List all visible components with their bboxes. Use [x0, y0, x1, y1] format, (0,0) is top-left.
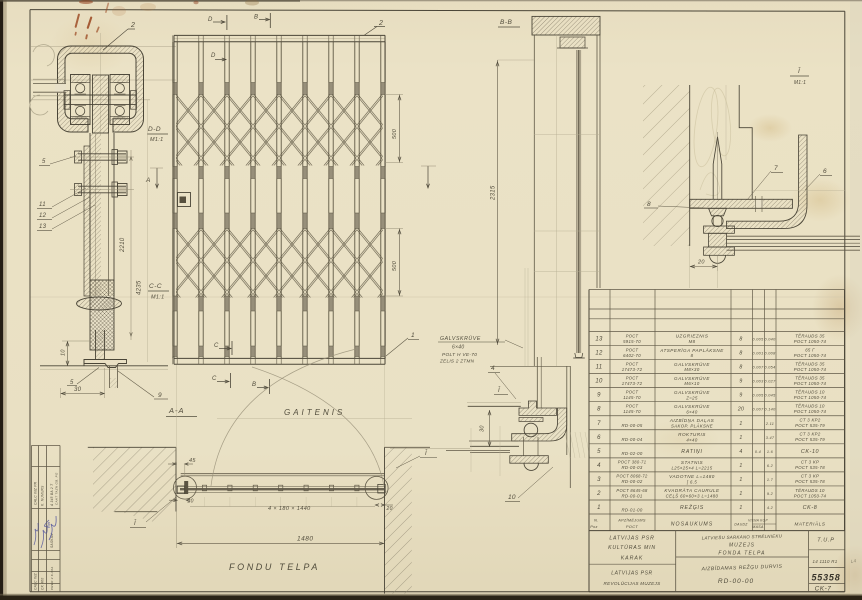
svg-text:10: 10 [61, 349, 67, 356]
svg-text:M1:1: M1:1 [150, 137, 163, 143]
svg-text:1: 1 [739, 491, 742, 497]
svg-text:Z=25: Z=25 [685, 395, 698, 400]
svg-text:POCT 1050-74: POCT 1050-74 [794, 367, 827, 372]
svg-text:1: 1 [739, 463, 742, 469]
svg-text:POCT 535-78: POCT 535-78 [795, 465, 825, 470]
svg-text:5: 5 [597, 449, 601, 455]
svg-text:RD-01-00: RD-01-00 [621, 507, 642, 512]
svg-text:CT 3 KP2: CT 3 KP2 [799, 432, 820, 437]
svg-text:D: D [208, 17, 213, 23]
svg-text:4235: 4235 [137, 280, 143, 295]
svg-text:ROKTURIS: ROKTURIS [678, 432, 706, 437]
svg-text:POCT 1050-74: POCT 1050-74 [794, 381, 827, 386]
svg-text:K. NUMURS: K. NUMURS [41, 485, 45, 506]
svg-text:POLT H VE-70: POLT H VE-70 [442, 352, 477, 358]
svg-text:8: 8 [647, 201, 651, 208]
svg-text:0.007: 0.007 [752, 366, 764, 370]
svg-text:0.054: 0.054 [764, 366, 775, 370]
svg-text:0.005: 0.005 [752, 394, 764, 398]
svg-text:1145-70: 1145-70 [623, 395, 641, 400]
svg-text:0.045: 0.045 [764, 394, 776, 398]
svg-text:Rih: Rih [46, 521, 51, 528]
svg-text:20: 20 [697, 260, 705, 266]
svg-text:7: 7 [597, 421, 601, 427]
svg-text:GALVSKRŪVE: GALVSKRŪVE [674, 389, 710, 395]
svg-text:8: 8 [739, 365, 742, 371]
svg-text:12: 12 [595, 351, 603, 357]
svg-text:1: 1 [597, 505, 601, 511]
svg-text:TĒRAUDS 35: TĒRAUDS 35 [795, 375, 825, 380]
svg-text:GALVSKRŪVE: GALVSKRŪVE [674, 375, 710, 381]
svg-text:CK-10: CK-10 [801, 449, 819, 455]
svg-text:TĒRAUDS 10: TĒRAUDS 10 [795, 488, 825, 493]
svg-text:A: A [145, 177, 151, 184]
svg-text:6: 6 [597, 435, 601, 441]
svg-text:ATSPERĪGA PAPLĀKSNE: ATSPERĪGA PAPLĀKSNE [659, 347, 724, 353]
svg-text:0.005: 0.005 [752, 338, 764, 342]
svg-text:30: 30 [480, 425, 486, 432]
svg-text:B: B [252, 382, 256, 388]
svg-text:PRED 3 K-60A: PRED 3 K-60A [50, 566, 54, 590]
svg-text:GAITENIS: GAITENIS [284, 408, 345, 417]
svg-text:POCT: POCT [626, 524, 639, 529]
svg-text:30: 30 [74, 387, 82, 393]
svg-text:VIENA KOP: VIENA KOP [748, 519, 768, 523]
svg-text:4: 4 [597, 463, 601, 469]
svg-text:M8: M8 [689, 339, 696, 344]
svg-text:0.007: 0.007 [752, 408, 764, 412]
svg-text:6402-70: 6402-70 [623, 353, 641, 358]
svg-text:APZĪMĒJUMS: APZĪMĒJUMS [617, 519, 646, 523]
svg-text:POCT 535-79: POCT 535-79 [795, 437, 825, 442]
svg-text:TĒRAUDS 10: TĒRAUDS 10 [795, 404, 825, 409]
svg-text:9: 9 [739, 379, 742, 385]
svg-text:0.040: 0.040 [764, 338, 776, 342]
svg-text:3: 3 [597, 477, 601, 483]
svg-text:CT 3 KP: CT 3 KP [801, 460, 819, 465]
svg-text:POCT: POCT [626, 361, 639, 366]
svg-text:RD-00-02: RD-00-02 [621, 479, 642, 484]
svg-text:3.47: 3.47 [766, 436, 775, 440]
svg-text:Poz: Poz [590, 525, 597, 529]
svg-text:RD-00-04: RD-00-04 [621, 437, 642, 442]
svg-text:4×40: 4×40 [686, 437, 697, 442]
svg-text:5915-70: 5915-70 [623, 339, 641, 344]
svg-text:POCT 1050-74: POCT 1050-74 [794, 339, 827, 344]
svg-text:6×40: 6×40 [452, 345, 464, 351]
svg-text:20: 20 [737, 407, 744, 413]
svg-text:CK-8: CK-8 [803, 505, 818, 511]
svg-text:6.2: 6.2 [767, 464, 774, 468]
svg-text:8: 8 [597, 407, 601, 413]
svg-text:STATNIS: STATNIS [681, 460, 704, 465]
svg-text:1: 1 [739, 421, 742, 427]
svg-text:A 345 BA 2 T: A 345 BA 2 T [50, 483, 54, 507]
svg-text:ZELIS 2 ZTMN: ZELIS 2 ZTMN [439, 359, 475, 364]
svg-text:1145-70: 1145-70 [623, 409, 641, 414]
svg-text:M1:1: M1:1 [151, 295, 164, 301]
svg-text:20: 20 [187, 499, 194, 505]
svg-text:POCT 8645-68: POCT 8645-68 [616, 488, 648, 493]
svg-text:13: 13 [39, 224, 47, 230]
svg-text:9.2: 9.2 [767, 492, 774, 496]
svg-text:6×40: 6×40 [686, 409, 697, 414]
svg-text:GALVSKRŪVE: GALVSKRŪVE [674, 403, 710, 409]
svg-text:N.: N. [594, 518, 599, 523]
svg-text:2: 2 [130, 22, 135, 29]
svg-text:2.11: 2.11 [765, 422, 774, 426]
svg-text:POCT 380-71: POCT 380-71 [618, 460, 647, 465]
svg-text:2210: 2210 [120, 237, 126, 253]
svg-text:10: 10 [508, 494, 516, 501]
svg-text:1.7: 1.7 [767, 478, 774, 482]
svg-text:MATERIĀLS: MATERIĀLS [794, 521, 825, 527]
svg-text:POCT: POCT [626, 375, 639, 380]
svg-text:17473-72: 17473-72 [622, 381, 643, 386]
svg-text:T.U.P: T.U.P [817, 538, 835, 544]
svg-text:1.6: 1.6 [767, 450, 774, 454]
svg-text:KARAK: KARAK [621, 556, 644, 562]
svg-text:12: 12 [39, 213, 47, 219]
svg-text:6: 6 [823, 168, 827, 175]
svg-text:1: 1 [411, 332, 415, 339]
svg-text:SAKOP. PLĀKSNE: SAKOP. PLĀKSNE [671, 423, 713, 428]
svg-text:9: 9 [158, 392, 162, 399]
svg-text:POCT: POCT [626, 347, 639, 352]
svg-text:DAUDZ: DAUDZ [734, 523, 748, 527]
svg-text:AIZBĪDŅA DAĻAS: AIZBĪDŅA DAĻAS [669, 417, 715, 423]
svg-text:C-C: C-C [149, 283, 162, 290]
svg-text:4.2: 4.2 [767, 506, 774, 510]
svg-text:LATVIJAS PSR: LATVIJAS PSR [609, 536, 654, 542]
svg-text:0.4: 0.4 [755, 450, 761, 454]
svg-text:1: 1 [739, 477, 742, 483]
svg-text:GALVSKRŪVE: GALVSKRŪVE [674, 361, 710, 367]
svg-text:CALC INZ PR: CALC INZ PR [34, 481, 38, 505]
svg-text:45: 45 [189, 458, 196, 464]
svg-text:2: 2 [596, 491, 601, 497]
svg-text:CT 3 KP2: CT 3 KP2 [799, 418, 820, 423]
svg-text:GALVSKRŪVE: GALVSKRŪVE [440, 335, 481, 342]
svg-text:4: 4 [739, 449, 742, 455]
svg-text:LATVIJAS PSR: LATVIJAS PSR [611, 571, 653, 577]
svg-text:MUZEJS: MUZEJS [729, 543, 755, 549]
svg-text:55358: 55358 [811, 573, 840, 583]
svg-text:KVADRĀTA CAURULE: KVADRĀTA CAURULE [664, 487, 720, 493]
svg-text:0.001: 0.001 [752, 352, 763, 356]
svg-text:L4: L4 [850, 558, 857, 564]
svg-text:MASA: MASA [752, 525, 764, 529]
svg-text:2315: 2315 [491, 185, 497, 201]
svg-text:0.027: 0.027 [764, 380, 776, 384]
svg-text:TĒRAUDS 35: TĒRAUDS 35 [795, 333, 825, 338]
svg-text:A-A: A-A [168, 406, 185, 415]
svg-text:0.003: 0.003 [752, 380, 764, 384]
svg-text:4 × 180 × 1440: 4 × 180 × 1440 [268, 506, 311, 512]
svg-text:11: 11 [596, 365, 603, 371]
svg-text:7: 7 [774, 165, 778, 172]
svg-text:11: 11 [39, 202, 46, 208]
svg-text:1: 1 [739, 505, 742, 511]
svg-text:1: 1 [739, 435, 742, 441]
svg-text:POCT 8068-72: POCT 8068-72 [616, 474, 648, 479]
svg-text:POCT 1050-74: POCT 1050-74 [794, 353, 827, 358]
svg-text:10: 10 [595, 379, 603, 385]
svg-text:CEĻŠ 60×60×3 L=1480: CEĻŠ 60×60×3 L=1480 [666, 494, 719, 499]
svg-text:KULTŪRAS MIN: KULTŪRAS MIN [608, 544, 656, 551]
svg-text:TĒRAUDS 10: TĒRAUDS 10 [795, 389, 825, 394]
svg-text:C: C [214, 343, 219, 349]
svg-text:9: 9 [597, 393, 601, 399]
svg-text:SASKAN: SASKAN [50, 533, 54, 548]
svg-text:RD-00-01: RD-00-01 [621, 493, 642, 498]
svg-text:65 Г: 65 Г [805, 347, 815, 352]
svg-text:NOSAUKUMS: NOSAUKUMS [671, 522, 713, 528]
svg-text:D-D: D-D [148, 126, 161, 133]
svg-text:5: 5 [70, 380, 74, 386]
svg-text:POCT 1050-74: POCT 1050-74 [794, 409, 827, 414]
svg-text:8: 8 [739, 351, 742, 357]
svg-text:POCT 535-79: POCT 535-79 [795, 423, 825, 428]
svg-text:C: C [212, 376, 217, 382]
svg-text:CAHT TAZN GB. PG: CAHT TAZN GB. PG [55, 472, 59, 505]
svg-text:2: 2 [378, 20, 383, 27]
svg-text:M1:1: M1:1 [794, 80, 806, 86]
svg-text:POCT 1050-74: POCT 1050-74 [794, 493, 827, 498]
svg-text:POCT: POCT [626, 333, 639, 338]
svg-text:5: 5 [42, 159, 46, 165]
svg-text:9: 9 [739, 393, 742, 399]
svg-text:RD-00-00: RD-00-00 [718, 578, 754, 585]
svg-text:POCT: POCT [626, 389, 639, 394]
svg-text:FONDU TELPA: FONDU TELPA [229, 562, 320, 572]
svg-text:8: 8 [691, 353, 694, 358]
svg-text:POCT 535-78: POCT 535-78 [795, 479, 825, 484]
svg-text:POCT: POCT [626, 404, 639, 409]
svg-text:17473-72: 17473-72 [622, 367, 643, 372]
svg-text:1480: 1480 [297, 536, 313, 543]
svg-text:RD-00-05: RD-00-05 [621, 423, 642, 428]
svg-text:B-B: B-B [500, 19, 513, 26]
svg-text:500: 500 [392, 128, 398, 139]
svg-text:RATIŅI: RATIŅI [681, 449, 702, 455]
svg-text:[ 6.5: [ 6.5 [686, 480, 698, 485]
svg-text:CALC INZ: CALC INZ [34, 572, 38, 590]
svg-text:RD-00-03: RD-00-03 [621, 465, 642, 470]
svg-text:REVOLŪCIJAS MUZEJS: REVOLŪCIJAS MUZEJS [604, 580, 662, 586]
svg-text:FONDA TELPA: FONDA TELPA [718, 551, 765, 557]
svg-text:M6×10: M6×10 [684, 381, 699, 386]
svg-text:TĒRAUDS 35: TĒRAUDS 35 [795, 361, 825, 366]
svg-text:0.008: 0.008 [764, 352, 776, 356]
svg-text:0.140: 0.140 [764, 408, 776, 412]
svg-text:UZGRIEZNIS: UZGRIEZNIS [676, 334, 709, 339]
svg-text:B: B [254, 15, 258, 21]
svg-text:CK-7: CK-7 [815, 586, 832, 593]
svg-text:14 1110 R1: 14 1110 R1 [812, 559, 837, 564]
svg-text:8: 8 [739, 337, 742, 343]
svg-text:CT 3 KP: CT 3 KP [801, 474, 819, 479]
svg-text:RD-02-00: RD-02-00 [621, 451, 642, 456]
svg-text:POCT 1050-74: POCT 1050-74 [794, 395, 827, 400]
svg-text:REŽĢIS: REŽĢIS [680, 503, 704, 511]
svg-text:VADOTNE L=1480: VADOTNE L=1480 [669, 474, 715, 479]
svg-text:D: D [211, 53, 216, 59]
svg-text:CK 460: CK 460 [41, 578, 45, 590]
svg-text:M8×30: M8×30 [684, 367, 699, 372]
svg-text:L25×25×4 L=2215: L25×25×4 L=2215 [671, 465, 712, 470]
svg-text:500: 500 [392, 260, 398, 271]
svg-text:13: 13 [595, 337, 603, 343]
